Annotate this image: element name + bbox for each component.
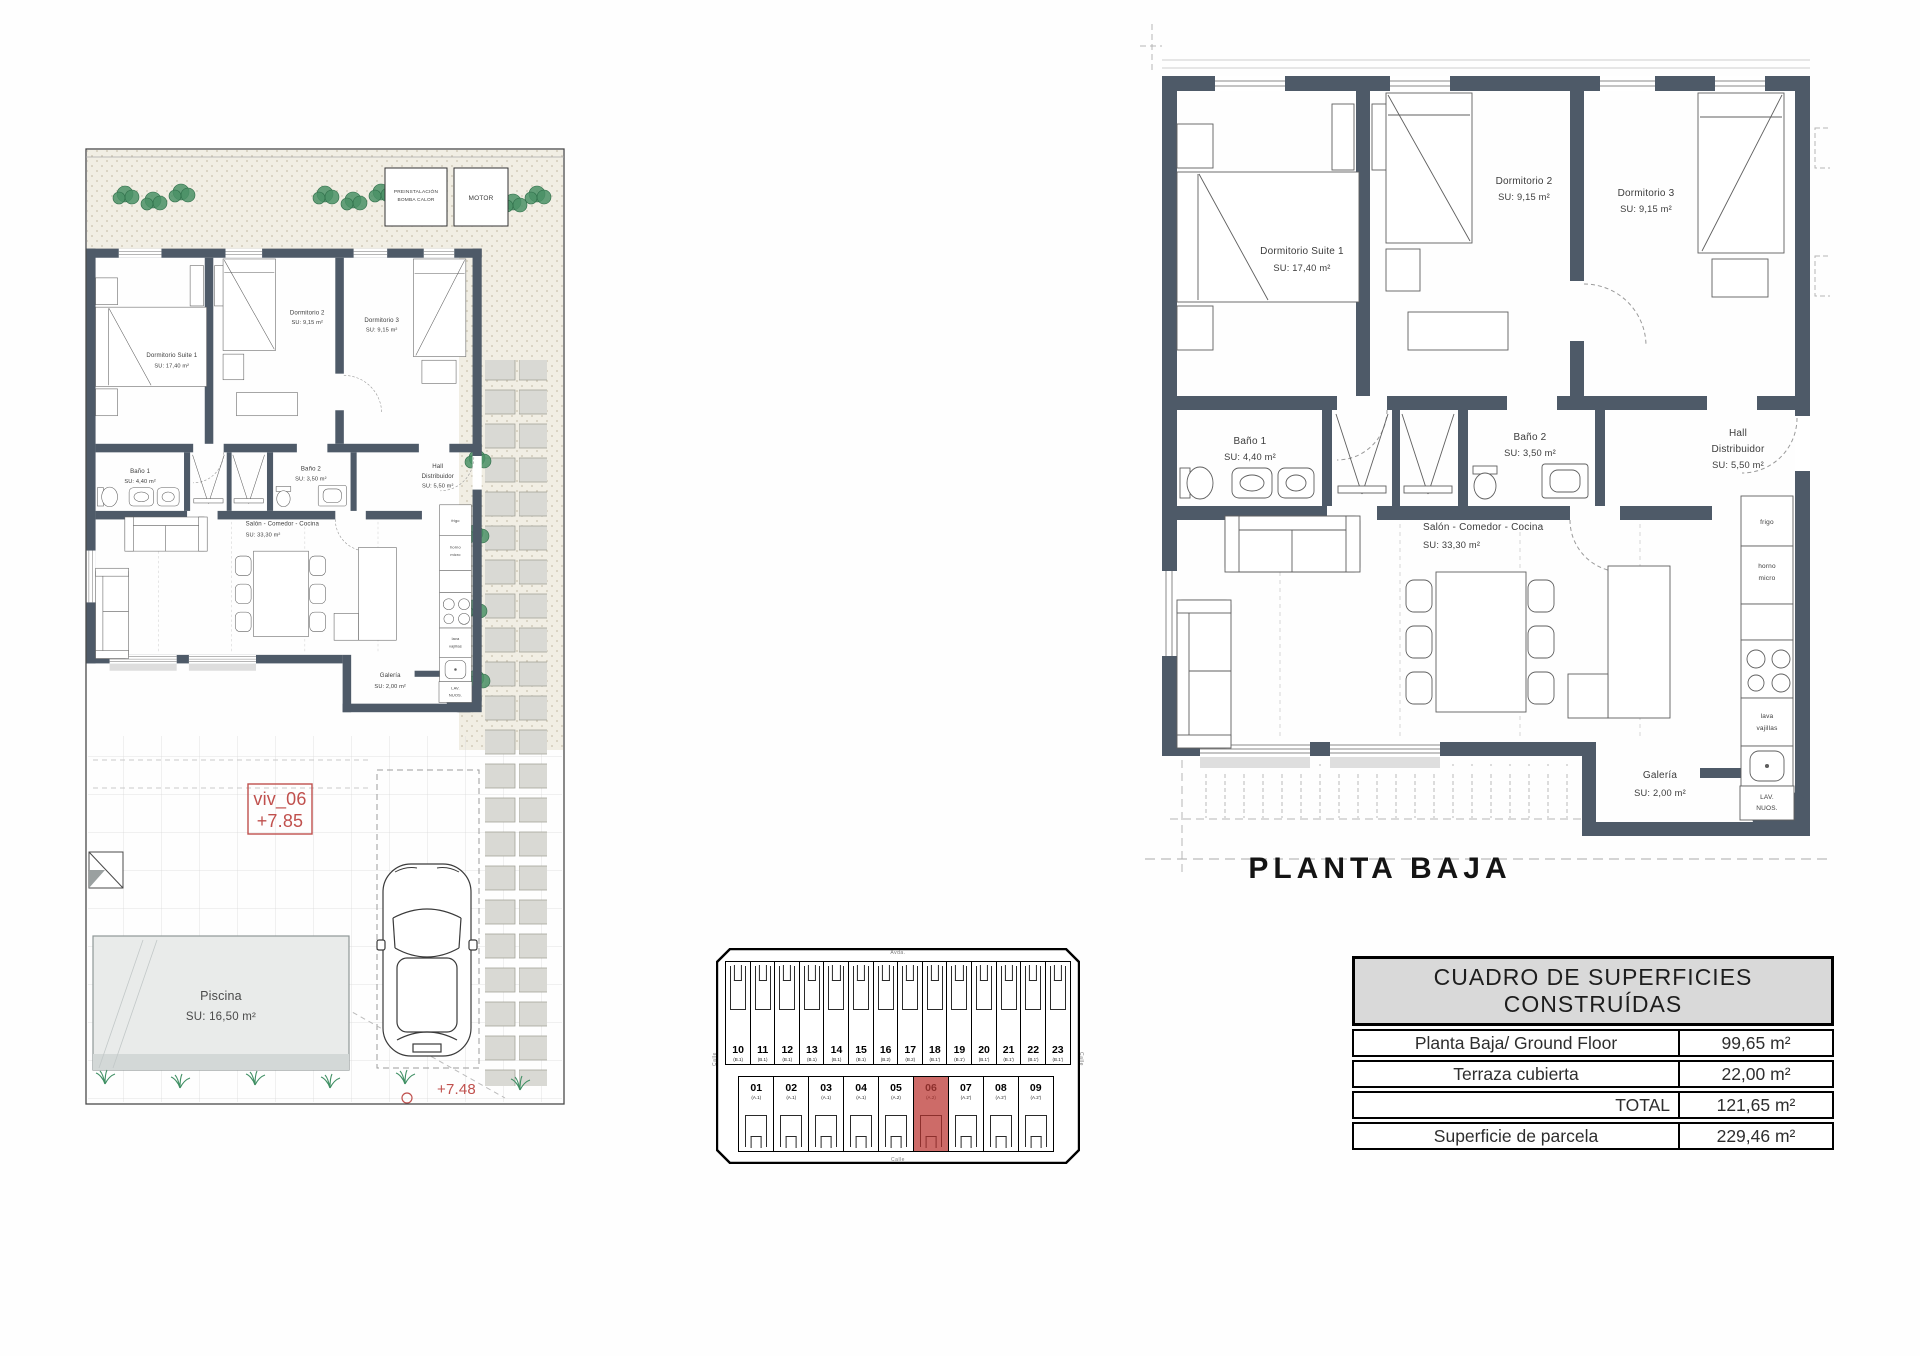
unit-number: 19 [954, 1045, 966, 1057]
unit-number: 04 [855, 1083, 867, 1095]
kitchen-island [1568, 566, 1670, 718]
unit-outline [885, 1115, 907, 1147]
hall-label-2: Distribuidor [1712, 444, 1765, 455]
key-plan-unit-11: 11(B.1) [750, 961, 776, 1065]
table-row-ground-floor: Planta Baja/ Ground Floor 99,65 m² [1352, 1029, 1834, 1057]
row-value: 229,46 m² [1680, 1124, 1832, 1148]
unit-number: 18 [929, 1045, 941, 1057]
unit-type: (B.1) [832, 1058, 842, 1063]
unit-outline [828, 966, 844, 1010]
unit-type: (B.1') [1053, 1058, 1064, 1063]
unit-type: (A.1) [786, 1096, 796, 1101]
equipment-boxes: PREINSTALACIÓN BOMBA CALOR MOTOR [385, 168, 508, 226]
unit-number: 12 [781, 1045, 793, 1057]
unit-outline [951, 966, 967, 1010]
unit-type: (A.2) [891, 1096, 901, 1101]
row-value: 99,65 m² [1680, 1031, 1832, 1055]
unit-outline [976, 966, 992, 1010]
entry-level-text: +7.48 [437, 1081, 476, 1098]
unit-number: 02 [785, 1083, 797, 1095]
bath2-area: SU: 3,50 m² [1504, 448, 1556, 458]
unit-outline [1025, 966, 1041, 1010]
key-plan-unit-12: 12(B.1) [774, 961, 800, 1065]
unit-type: (B.1) [856, 1058, 866, 1063]
site-plan: PREINSTALACIÓN BOMBA CALOR MOTOR Piscina… [85, 148, 565, 1106]
unit-type: (B.1') [930, 1058, 941, 1063]
key-plan-unit-23: 23(B.1') [1045, 961, 1071, 1065]
row-value: 121,65 m² [1680, 1093, 1832, 1117]
unit-outline [902, 966, 918, 1010]
key-plan-row-top: 10(B.1)11(B.1)12(B.1)13(B.1)14(B.1)15(B.… [725, 961, 1071, 1065]
suite-label: Dormitorio Suite 1 [1260, 246, 1344, 257]
unit-id-text: viv_06 [253, 789, 306, 810]
unit-number: 08 [995, 1083, 1007, 1095]
row-label: TOTAL [1354, 1093, 1680, 1117]
pool-label: Piscina [200, 989, 242, 1003]
house-mini [86, 249, 481, 713]
washer-box [1740, 786, 1794, 820]
hall-area: SU: 5,50 m² [1712, 460, 1764, 470]
salon-area: SU: 33,30 m² [1423, 540, 1480, 550]
table-row-plot: Superficie de parcela 229,46 m² [1352, 1122, 1834, 1150]
key-plan-unit-14: 14(B.1) [823, 961, 849, 1065]
sofa-horizontal [1225, 516, 1360, 572]
unit-number: 22 [1027, 1045, 1039, 1057]
unit-outline [1050, 966, 1066, 1010]
key-plan-unit-21: 21(B.1') [996, 961, 1022, 1065]
unit-number: 06 [925, 1083, 937, 1095]
unit-number: 03 [820, 1083, 832, 1095]
dorm3-area: SU: 9,15 m² [1620, 204, 1672, 214]
bath1-fixtures [1180, 467, 1314, 499]
key-plan-row-bottom: 01(A.1)02(A.1)03(A.1)04(A.1)05(A.2)06(A.… [738, 1076, 1054, 1152]
key-plan-unit-06: 06(A.2) [913, 1076, 950, 1152]
salon-label: Salón - Comedor - Cocina [1423, 522, 1544, 533]
unit-number: 20 [978, 1045, 990, 1057]
key-plan-unit-16: 16(B.2) [873, 961, 899, 1065]
unit-outline [850, 1115, 872, 1147]
laundry-label-2: NUOS. [1756, 805, 1778, 812]
blueprint-canvas: Dormitorio Suite 1 SU: 17,40 m² Dormitor… [0, 0, 1920, 1356]
dorm2-label: Dormitorio 2 [1496, 176, 1553, 187]
oven-label-2: micro [1759, 575, 1776, 582]
unit-outline [730, 966, 746, 1010]
key-plan-unit-04: 04(A.1) [843, 1076, 880, 1152]
street-label-top: Avda. [716, 950, 1080, 956]
unit-type: (A.1) [751, 1096, 761, 1101]
unit-outline [955, 1115, 977, 1147]
bath2-fixtures [1473, 464, 1588, 499]
unit-outline [853, 966, 869, 1010]
unit-type: (B.1) [733, 1058, 743, 1063]
galeria-label: Galería [1643, 770, 1677, 781]
unit-outline [1025, 1115, 1047, 1147]
dorm2-area: SU: 9,15 m² [1498, 192, 1550, 202]
unit-type: (B.2) [905, 1058, 915, 1063]
unit-type: (A.1) [821, 1096, 831, 1101]
areas-table-title: CUADRO DE SUPERFICIES CONSTRUÍDAS [1352, 956, 1834, 1026]
unit-number: 09 [1030, 1083, 1042, 1095]
unit-outline [780, 1115, 802, 1147]
heat-pump-label-1: PREINSTALACIÓN [394, 188, 439, 195]
unit-number: 14 [831, 1045, 843, 1057]
unit-type: (A.2') [996, 1096, 1007, 1101]
sofa-vertical [1177, 600, 1231, 748]
kitchen-strip [1740, 496, 1794, 820]
bath2-label: Baño 2 [1514, 432, 1547, 443]
dishwasher-label-2: vajillas [1756, 725, 1778, 732]
row-label: Planta Baja/ Ground Floor [1354, 1031, 1680, 1055]
unit-outline [990, 1115, 1012, 1147]
unit-type: (A.2') [1030, 1096, 1041, 1101]
key-plan-unit-13: 13(B.1) [799, 961, 825, 1065]
unit-outline [878, 966, 894, 1010]
table-row-total: TOTAL 121,65 m² [1352, 1091, 1834, 1119]
heat-pump-label-2: BOMBA CALOR [397, 197, 434, 203]
key-plan-unit-05: 05(A.2) [878, 1076, 915, 1152]
unit-number: 13 [806, 1045, 818, 1057]
laundry-label-1: LAV. [1760, 794, 1774, 801]
hall-label-1: Hall [1729, 428, 1747, 439]
motor-label: MOTOR [468, 195, 493, 202]
unit-number: 07 [960, 1083, 972, 1095]
unit-number: 17 [904, 1045, 916, 1057]
unit-type: (B.1') [1003, 1058, 1014, 1063]
unit-outline [779, 966, 795, 1010]
dorm2-bed [1386, 93, 1508, 350]
car [377, 864, 477, 1056]
house-plan: Dormitorio Suite 1 SU: 17,40 m² Dormitor… [1162, 76, 1810, 836]
unit-number: 05 [890, 1083, 902, 1095]
unit-type: (A.1) [856, 1096, 866, 1101]
floorplan-title: PLANTA BAJA [1100, 852, 1660, 886]
unit-outline [815, 1115, 837, 1147]
unit-number: 15 [855, 1045, 867, 1057]
bath1-area: SU: 4,40 m² [1224, 452, 1276, 462]
key-plan-unit-17: 17(B.2) [897, 961, 923, 1065]
fridge-label: frigo [1760, 519, 1774, 526]
key-plan-unit-03: 03(A.1) [808, 1076, 845, 1152]
dishwasher-label-1: lava [1761, 713, 1774, 720]
unit-outline [920, 1115, 942, 1147]
unit-outline [1001, 966, 1017, 1010]
unit-type: (B.1') [954, 1058, 965, 1063]
unit-type: (B.1') [979, 1058, 990, 1063]
street-label-left: Calle [712, 1052, 718, 1066]
row-label: Superficie de parcela [1354, 1124, 1680, 1148]
suite-area: SU: 17,40 m² [1273, 263, 1330, 273]
key-plan: Avda. 10(B.1)11(B.1)12(B.1)13(B.1)14(B.1… [716, 948, 1080, 1164]
unit-outline [755, 966, 771, 1010]
key-plan-unit-08: 08(A.2') [983, 1076, 1020, 1152]
unit-type: (B.1') [1028, 1058, 1039, 1063]
key-plan-unit-09: 09(A.2') [1018, 1076, 1055, 1152]
unit-number: 10 [732, 1045, 744, 1057]
key-plan-unit-20: 20(B.1') [971, 961, 997, 1065]
key-plan-unit-22: 22(B.1') [1020, 961, 1046, 1065]
unit-number: 21 [1003, 1045, 1015, 1057]
oven-label-1: horno [1758, 563, 1776, 570]
unit-type: (A.2') [961, 1096, 972, 1101]
unit-type: (B.1) [758, 1058, 768, 1063]
unit-outline [927, 966, 943, 1010]
galeria-area: SU: 2,00 m² [1634, 788, 1686, 798]
unit-type: (B.2) [881, 1058, 891, 1063]
areas-table: CUADRO DE SUPERFICIES CONSTRUÍDAS Planta… [1352, 956, 1834, 1150]
unit-level-text: +7.85 [257, 811, 304, 831]
unit-type: (B.1) [807, 1058, 817, 1063]
unit-number: 16 [880, 1045, 892, 1057]
unit-outline [804, 966, 820, 1010]
unit-outline [745, 1115, 767, 1147]
key-plan-unit-01: 01(A.1) [738, 1076, 775, 1152]
bath1-label: Baño 1 [1234, 436, 1267, 447]
key-plan-unit-02: 02(A.1) [773, 1076, 810, 1152]
street-label-right: Calle [1078, 1052, 1084, 1066]
row-value: 22,00 m² [1680, 1062, 1832, 1086]
skimmer-box [89, 852, 123, 888]
key-plan-unit-19: 19(B.1') [946, 961, 972, 1065]
hob-burner [1747, 650, 1765, 668]
heat-pump-box [385, 168, 447, 226]
dorm3-label: Dormitorio 3 [1618, 188, 1675, 199]
unit-number: 01 [750, 1083, 762, 1095]
street-label-bottom: Calle [716, 1157, 1080, 1163]
unit-number: 11 [757, 1045, 768, 1057]
row-label: Terraza cubierta [1354, 1062, 1680, 1086]
unit-number: 23 [1052, 1045, 1064, 1057]
floorplan-detailed: Dormitorio Suite 1 SU: 17,40 m² Dormitor… [1140, 16, 1830, 878]
key-plan-unit-18: 18(B.1') [922, 961, 948, 1065]
key-plan-unit-15: 15(B.1) [848, 961, 874, 1065]
key-plan-unit-10: 10(B.1) [725, 961, 751, 1065]
unit-type: (B.1) [782, 1058, 792, 1063]
dorm3-bed [1698, 93, 1784, 297]
table-row-terrace: Terraza cubierta 22,00 m² [1352, 1060, 1834, 1088]
unit-type: (A.2) [926, 1096, 936, 1101]
key-plan-unit-07: 07(A.2') [948, 1076, 985, 1152]
paver-path [485, 360, 547, 1086]
pool-area: SU: 16,50 m² [186, 1011, 256, 1023]
pool: Piscina SU: 16,50 m² [93, 936, 349, 1070]
dining-set [1406, 572, 1554, 712]
